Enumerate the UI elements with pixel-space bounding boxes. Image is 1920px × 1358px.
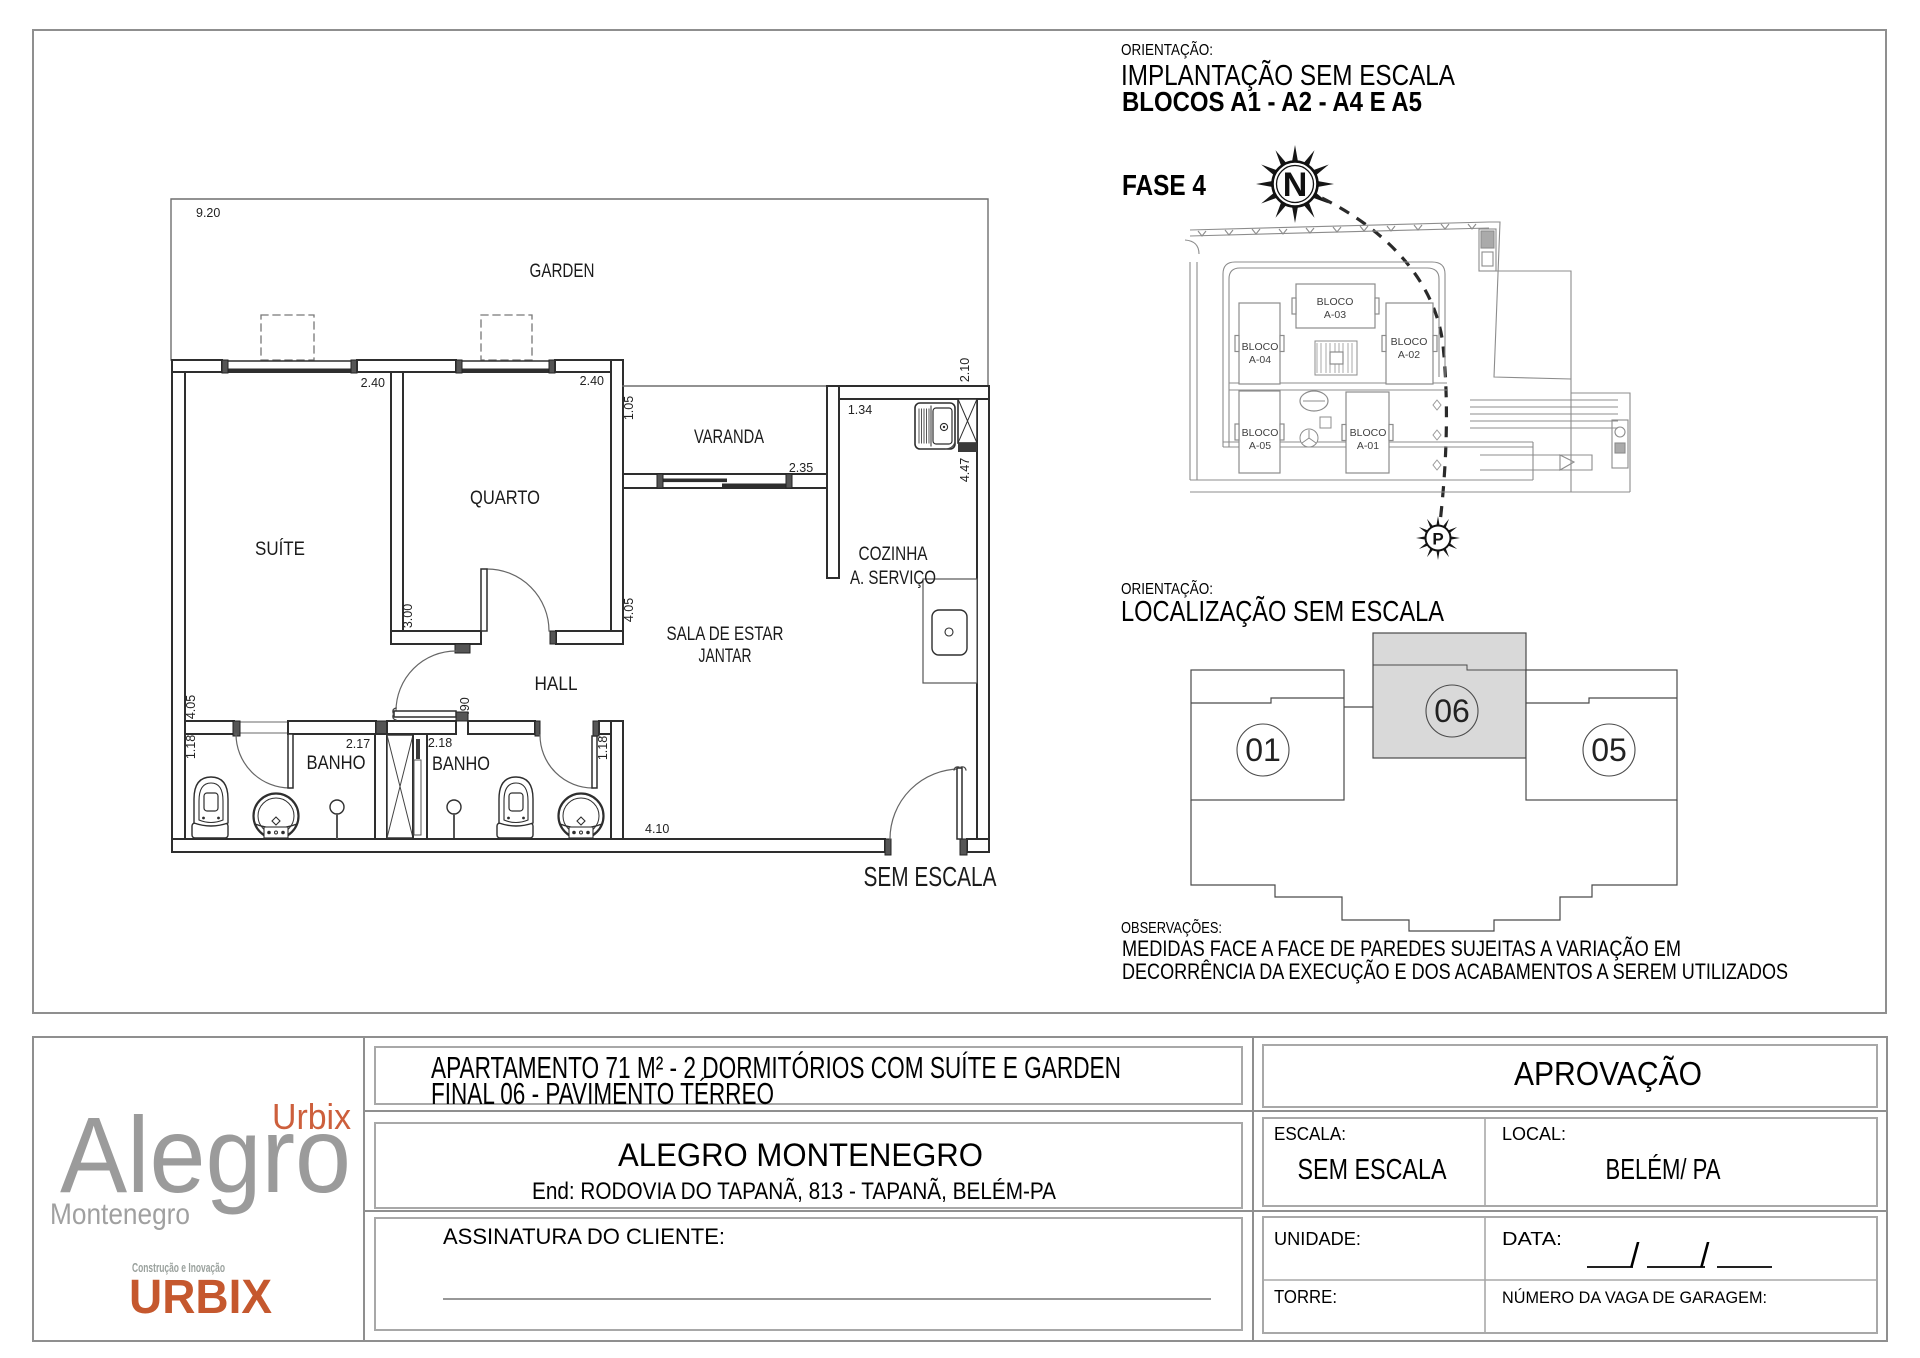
svg-text:Montenegro: Montenegro — [50, 1198, 190, 1231]
svg-text:LOCAL:: LOCAL: — [1502, 1124, 1566, 1144]
svg-text:FINAL 06 - PAVIMENTO TÉRREO: FINAL 06 - PAVIMENTO TÉRREO — [431, 1076, 774, 1111]
svg-text:OBSERVAÇÕES:: OBSERVAÇÕES: — [1121, 917, 1222, 937]
svg-text:4.10: 4.10 — [645, 822, 669, 836]
svg-text:ORIENTAÇÃO:: ORIENTAÇÃO: — [1121, 39, 1213, 59]
svg-text:ASSINATURA DO CLIENTE:: ASSINATURA DO CLIENTE: — [443, 1224, 725, 1249]
svg-text:FASE 4: FASE 4 — [1122, 170, 1206, 202]
svg-text:BLOCOS A1 - A2 - A4 E A5: BLOCOS A1 - A2 - A4 E A5 — [1122, 86, 1422, 117]
svg-text:4.05: 4.05 — [622, 598, 636, 622]
svg-text:GARDEN: GARDEN — [530, 260, 595, 282]
svg-text:COZINHA: COZINHA — [859, 543, 928, 565]
svg-text:LOCALIZAÇÃO SEM ESCALA: LOCALIZAÇÃO SEM ESCALA — [1121, 596, 1444, 628]
svg-text:2.17: 2.17 — [346, 737, 370, 751]
svg-text:DECORRÊNCIA DA EXECUÇÃO E DOS: DECORRÊNCIA DA EXECUÇÃO E DOS ACABAMENTO… — [1122, 959, 1788, 984]
svg-text:Alegro: Alegro — [60, 1094, 351, 1215]
svg-text:A-02: A-02 — [1398, 349, 1420, 361]
svg-text:A-04: A-04 — [1249, 354, 1271, 366]
svg-text:End: RODOVIA DO TAPANÃ, 813 -: End: RODOVIA DO TAPANÃ, 813 - TAPANÃ, BE… — [532, 1178, 1056, 1205]
svg-text:2.40: 2.40 — [580, 374, 604, 388]
svg-text:SEM ESCALA: SEM ESCALA — [864, 861, 997, 892]
svg-text:URBIX: URBIX — [129, 1271, 272, 1324]
svg-text:/: / — [1630, 1237, 1640, 1275]
svg-text:A-01: A-01 — [1357, 440, 1379, 452]
svg-text:ESCALA:: ESCALA: — [1274, 1124, 1346, 1144]
svg-text:4.47: 4.47 — [958, 458, 972, 482]
svg-text:JANTAR: JANTAR — [699, 645, 752, 667]
svg-text:2.35: 2.35 — [789, 461, 813, 475]
svg-text:1.34: 1.34 — [848, 403, 872, 417]
svg-text:06: 06 — [1434, 693, 1470, 729]
svg-text:2.40: 2.40 — [361, 376, 385, 390]
svg-text:SALA DE ESTAR: SALA DE ESTAR — [667, 623, 784, 645]
svg-text:BLOCO: BLOCO — [1242, 427, 1279, 439]
svg-text:.90: .90 — [458, 697, 472, 714]
svg-text:N: N — [1283, 166, 1308, 204]
svg-text:2.10: 2.10 — [958, 358, 972, 382]
svg-text:VARANDA: VARANDA — [694, 426, 764, 448]
svg-text:ORIENTAÇÃO:: ORIENTAÇÃO: — [1121, 578, 1213, 598]
svg-text:BANHO: BANHO — [307, 752, 366, 774]
svg-text:QUARTO: QUARTO — [470, 487, 540, 509]
svg-text:BELÉM/ PA: BELÉM/ PA — [1606, 1153, 1721, 1186]
svg-text:A-05: A-05 — [1249, 440, 1271, 452]
svg-text:TORRE:: TORRE: — [1274, 1287, 1337, 1307]
svg-text:1.18: 1.18 — [184, 735, 198, 759]
svg-text:/: / — [1700, 1237, 1710, 1275]
svg-text:UNIDADE:: UNIDADE: — [1274, 1229, 1361, 1249]
svg-text:A. SERVIÇO: A. SERVIÇO — [850, 567, 936, 589]
svg-text:DATA:: DATA: — [1502, 1229, 1562, 1249]
svg-text:SEM ESCALA: SEM ESCALA — [1298, 1154, 1448, 1186]
svg-text:MEDIDAS FACE A FACE DE PAREDES: MEDIDAS FACE A FACE DE PAREDES SUJEITAS … — [1122, 936, 1681, 961]
svg-text:4.05: 4.05 — [184, 695, 198, 719]
svg-text:9.20: 9.20 — [196, 206, 220, 220]
svg-text:HALL: HALL — [535, 673, 578, 695]
svg-text:BLOCO: BLOCO — [1391, 336, 1428, 348]
svg-text:A-03: A-03 — [1324, 309, 1346, 321]
svg-text:1.05: 1.05 — [622, 396, 636, 420]
svg-text:1.18: 1.18 — [596, 736, 610, 760]
svg-text:BANHO: BANHO — [432, 753, 490, 775]
svg-text:3.00: 3.00 — [401, 604, 415, 628]
svg-text:BLOCO: BLOCO — [1350, 427, 1387, 439]
svg-text:BLOCO: BLOCO — [1242, 341, 1279, 353]
svg-text:ALEGRO MONTENEGRO: ALEGRO MONTENEGRO — [618, 1137, 983, 1173]
svg-text:P: P — [1432, 530, 1443, 549]
svg-text:2.18: 2.18 — [428, 736, 452, 750]
svg-text:SUÍTE: SUÍTE — [255, 537, 305, 560]
svg-text:APROVAÇÃO: APROVAÇÃO — [1514, 1055, 1702, 1093]
svg-text:01: 01 — [1245, 732, 1281, 768]
svg-text:NÚMERO DA VAGA DE GARAGEM:: NÚMERO DA VAGA DE GARAGEM: — [1502, 1288, 1767, 1307]
svg-text:BLOCO: BLOCO — [1317, 296, 1354, 308]
svg-text:05: 05 — [1591, 732, 1627, 768]
